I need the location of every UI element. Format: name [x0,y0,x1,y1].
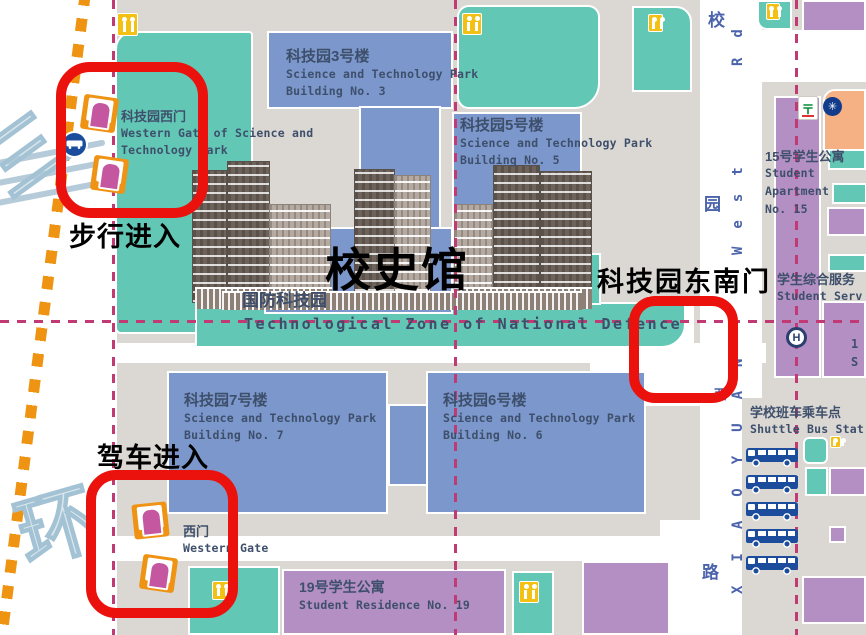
purple-chip-e3 [829,526,846,543]
building-illustration-tower [227,161,270,303]
campus-map: 三 环 科技园西门 Western Gate of Science andTec… [0,0,866,635]
road-top-right [756,30,866,82]
road-char-yuan: 园 [704,190,721,215]
label-building-no6: 科技园6号楼 Science and Technology ParkBuildi… [443,389,635,443]
label-building-no5: 科技园5号楼 Science and Technology ParkBuildi… [460,114,652,168]
label-apartment15: 15号学生公寓 StudentApartmentNo. 15 [765,146,844,218]
park-facility-icon [519,581,539,603]
china-post-icon: 〒 [798,96,818,120]
road-char-lu: 路 [702,558,719,583]
park-facility-icon [830,436,841,448]
label-defence-zone: 国防科技园 [242,286,327,311]
helipad-icon: H [786,327,807,348]
purple-chip-topright [802,0,866,32]
highlight-box-drive-gate [86,470,238,618]
highlight-box-southeast-gate [629,296,738,403]
service-east-block [822,301,866,378]
park-facility-icon [648,14,663,32]
building-illustration-tower [493,165,540,302]
label-residence19: 19号学生公寓 Student Residence No. 19 [299,577,470,614]
highlight-box-walk-gate [56,62,208,218]
label-building-no7: 科技园7号楼 Science and Technology ParkBuildi… [184,389,376,443]
annotation-southeast-gate: 科技园东南门 [597,260,771,299]
label-defence-zone-en: Technological Zone of National Defence [244,314,682,336]
shuttle-bus-icon [745,526,799,553]
purple-chip-e2 [829,467,866,496]
park-chip-e4 [803,437,828,464]
annotation-walk-in: 步行进入 [69,215,181,254]
shuttle-bus-icon [745,553,799,580]
annotation-history-museum: 校史馆 [325,234,469,300]
label-edge-partial-2: S [851,354,858,371]
label-shuttle-stop: 学校班车乘车点 Shuttle Bus Stat [750,402,864,438]
label-building-no3: 科技园3号楼 Science and Technology ParkBuildi… [286,45,478,99]
building-connector [388,404,429,486]
telecom-icon: ✳ [823,97,842,116]
park-facility-icon [117,13,138,36]
annotation-drive-in: 驾车进入 [97,436,209,475]
road-char-xiao: 校 [708,6,725,31]
building-illustration-tower [540,171,592,302]
shuttle-bus-icon [745,445,799,472]
purple-block-se [802,576,866,624]
label-edge-partial-1: 1 [851,336,858,353]
shuttle-bus-icon [745,499,799,526]
park-facility-icon [766,3,780,20]
label-student-service: 学生综合服务 Student Serv [777,269,862,305]
park-chip-e5 [805,467,828,496]
park-facility-icon [462,13,482,35]
road-word-rd: Rd [730,9,746,66]
shuttle-bus-icon [745,472,799,499]
road-word-west: West [730,149,746,255]
residence20-block [582,561,670,635]
